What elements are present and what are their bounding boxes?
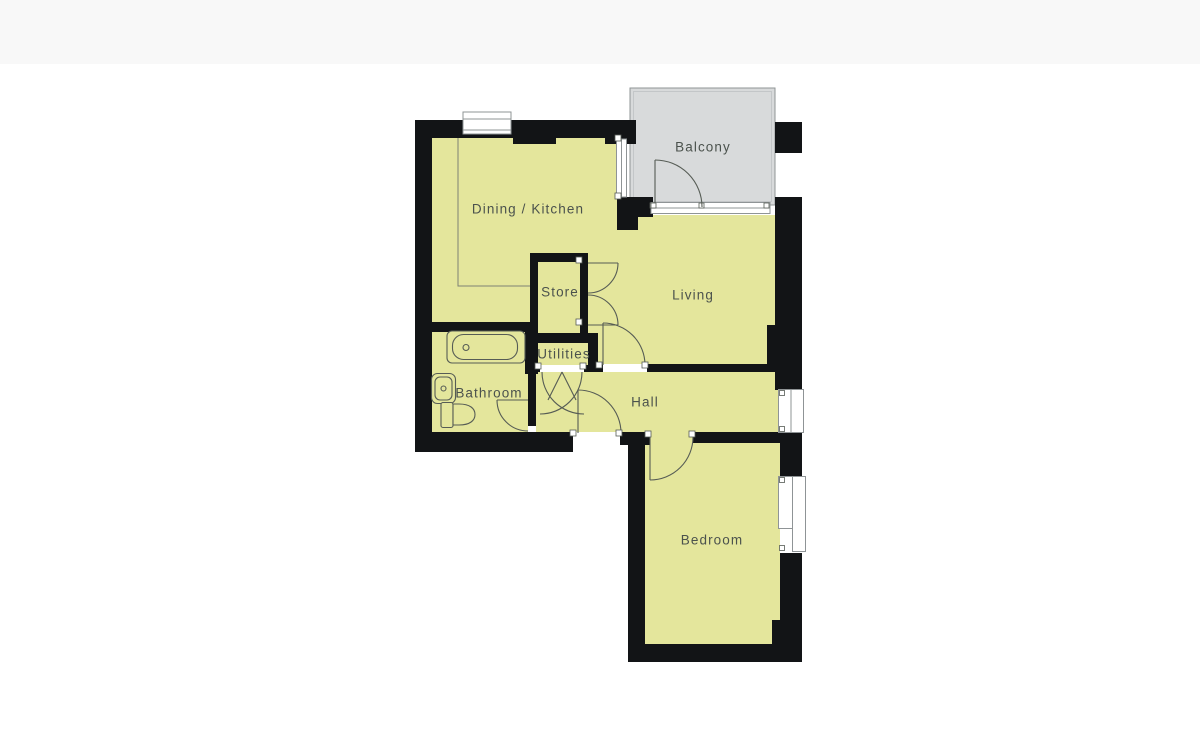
room-label-bathroom: Bathroom <box>455 386 522 401</box>
room-label-store: Store <box>541 285 579 300</box>
room-label-bedroom: Bedroom <box>681 533 743 548</box>
hall-window-icon <box>779 390 804 433</box>
bathtub-icon <box>447 331 525 363</box>
kitchen-east-window-icon <box>615 135 627 199</box>
room-label-hall: Hall <box>631 395 659 410</box>
room-label-living: Living <box>672 288 714 303</box>
kitchen-window-icon <box>463 112 511 134</box>
top-band <box>0 0 1200 64</box>
washbasin-icon <box>432 374 456 404</box>
room-label-utilities: Utilities <box>537 347 590 362</box>
floor-plan-drawing <box>0 0 1200 742</box>
room-label-dining-kitchen: Dining / Kitchen <box>472 202 584 217</box>
balcony-threshold-icon <box>650 203 770 214</box>
floor-plan: Balcony Dining / Kitchen Living Store Ut… <box>0 0 1200 742</box>
room-label-balcony: Balcony <box>675 140 731 155</box>
